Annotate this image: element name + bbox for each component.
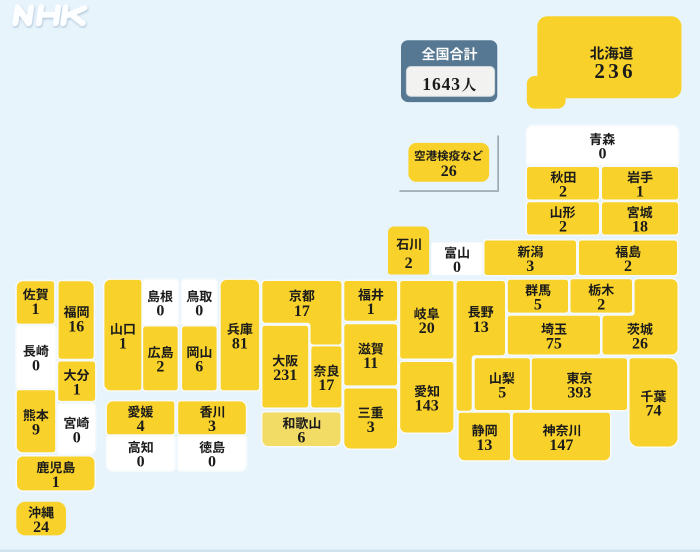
svg-text:1: 1 xyxy=(367,301,375,318)
svg-text:81: 81 xyxy=(232,335,248,352)
svg-text:2: 2 xyxy=(405,255,413,272)
svg-text:0: 0 xyxy=(208,454,216,471)
svg-text:74: 74 xyxy=(646,403,662,420)
svg-text:2: 2 xyxy=(156,359,164,376)
svg-text:6: 6 xyxy=(297,430,305,447)
svg-text:1643: 1643 xyxy=(422,74,461,94)
svg-text:6: 6 xyxy=(195,359,203,376)
svg-text:20: 20 xyxy=(419,320,435,337)
svg-text:3: 3 xyxy=(526,258,534,275)
svg-text:0: 0 xyxy=(599,146,607,163)
svg-text:2: 2 xyxy=(624,258,632,275)
svg-text:231: 231 xyxy=(273,367,297,384)
svg-text:26: 26 xyxy=(441,163,457,180)
svg-text:1: 1 xyxy=(52,474,60,491)
svg-text:0: 0 xyxy=(195,303,203,320)
svg-text:13: 13 xyxy=(473,319,489,336)
svg-text:236: 236 xyxy=(594,59,636,83)
svg-text:17: 17 xyxy=(318,377,334,394)
svg-text:5: 5 xyxy=(534,296,542,313)
svg-text:2: 2 xyxy=(597,296,605,313)
svg-text:143: 143 xyxy=(415,398,439,415)
svg-text:5: 5 xyxy=(498,384,506,401)
svg-text:2: 2 xyxy=(559,219,567,236)
svg-text:1: 1 xyxy=(73,382,81,399)
svg-text:2: 2 xyxy=(559,184,567,201)
svg-text:0: 0 xyxy=(137,454,145,471)
svg-text:11: 11 xyxy=(363,355,378,372)
svg-text:1: 1 xyxy=(32,301,40,318)
svg-text:75: 75 xyxy=(546,335,562,352)
svg-text:0: 0 xyxy=(32,357,40,374)
svg-text:13: 13 xyxy=(476,437,492,454)
svg-text:3: 3 xyxy=(208,418,216,435)
svg-text:24: 24 xyxy=(33,519,49,536)
svg-text:1: 1 xyxy=(119,335,127,352)
svg-text:0: 0 xyxy=(453,259,461,276)
svg-text:1: 1 xyxy=(636,184,644,201)
svg-text:4: 4 xyxy=(137,418,145,435)
svg-text:147: 147 xyxy=(549,437,573,454)
svg-text:17: 17 xyxy=(294,303,310,320)
svg-text:18: 18 xyxy=(632,219,648,236)
svg-text:0: 0 xyxy=(156,303,164,320)
svg-text:16: 16 xyxy=(68,318,84,335)
svg-text:9: 9 xyxy=(32,422,40,439)
svg-text:393: 393 xyxy=(567,384,591,401)
svg-text:3: 3 xyxy=(367,419,375,436)
svg-text:26: 26 xyxy=(632,335,648,352)
svg-text:0: 0 xyxy=(73,429,81,446)
